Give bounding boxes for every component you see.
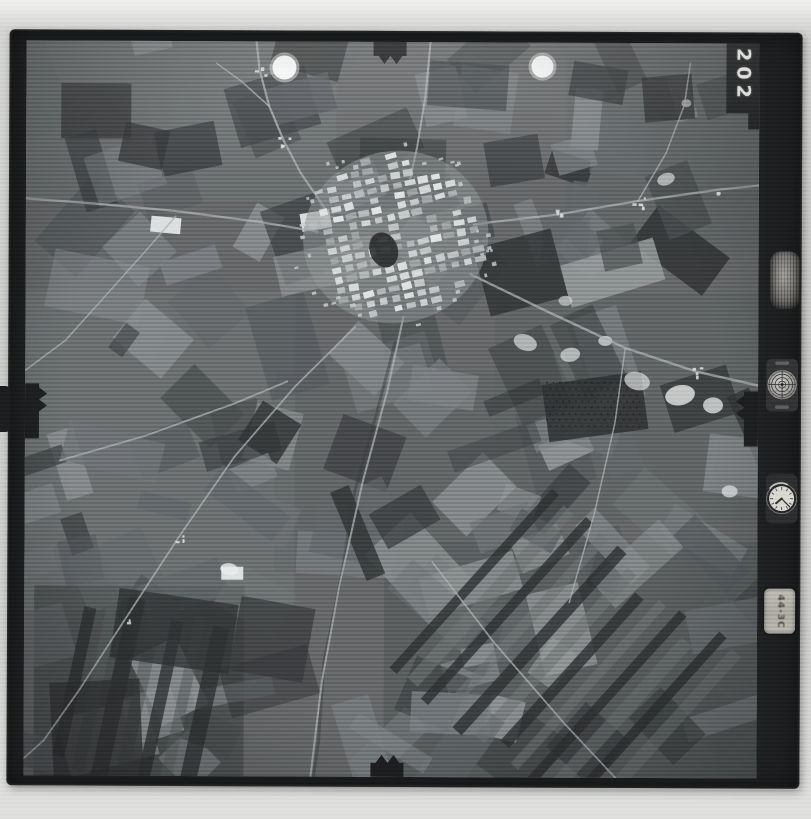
clock-center-pin [780, 497, 782, 499]
film-frame: 202 [6, 29, 802, 788]
frame-number: 202 [733, 45, 753, 105]
altimeter-drum-icon [770, 252, 799, 309]
clock-icon [766, 474, 798, 524]
bubble-level-icon [766, 359, 798, 412]
level-engraving-bottom [775, 406, 789, 409]
film-edge-notch [0, 386, 9, 432]
aerial-photo [23, 40, 759, 778]
vignette-layer [23, 40, 759, 778]
data-plate: 44-3C [764, 589, 795, 634]
level-engraving-top [775, 362, 789, 365]
altimeter-sheen [770, 252, 799, 309]
data-plate-text: 44-3C [775, 594, 785, 628]
level-bubble [781, 383, 784, 386]
scanned-aerial-photograph-page: { "scan": { "background_color": "#c9c9c8… [0, 0, 811, 819]
aerial-photo-svg [23, 40, 759, 778]
